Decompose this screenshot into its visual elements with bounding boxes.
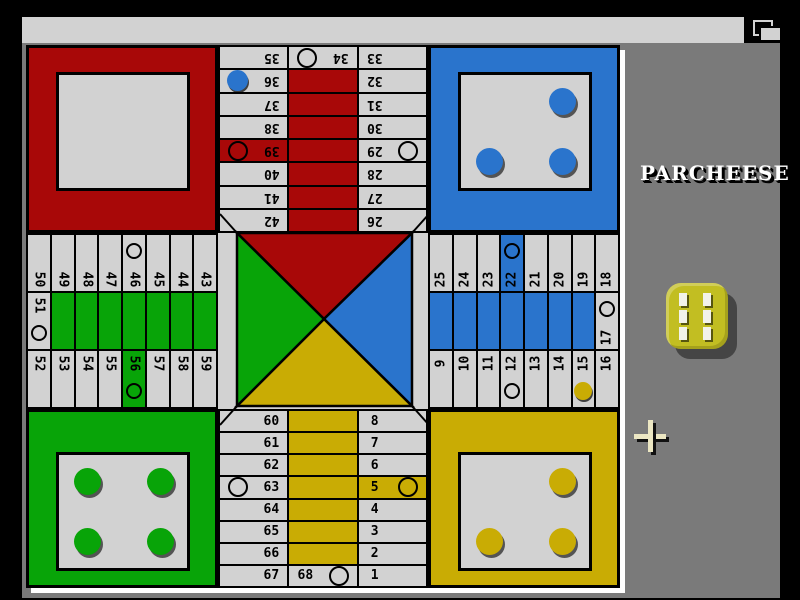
safe-circle bbox=[329, 566, 349, 586]
cell-number: 49 bbox=[55, 271, 70, 287]
track-cell-3[interactable]: 3 bbox=[359, 522, 426, 542]
cell-number: 48 bbox=[79, 271, 94, 287]
cell-extra-slot bbox=[220, 411, 255, 431]
cell-number: 10 bbox=[457, 355, 472, 371]
cell-number-slot: 23 bbox=[478, 267, 500, 291]
cell-number: 1 bbox=[371, 568, 379, 583]
home-corner-green bbox=[26, 409, 218, 588]
home-corner-blue bbox=[428, 45, 620, 233]
track-arm-right: 252423222120191817910111213141516 bbox=[428, 233, 620, 409]
cell-number: 25 bbox=[433, 271, 448, 287]
cell-number: 34 bbox=[333, 50, 349, 65]
home-run-cell-blue[interactable] bbox=[549, 293, 571, 349]
cell-number: 28 bbox=[367, 166, 383, 181]
cell-extra-slot bbox=[391, 70, 426, 91]
cell-number: 9 bbox=[433, 359, 448, 367]
die-pip bbox=[679, 293, 687, 306]
cell-number: 3 bbox=[371, 524, 379, 539]
cell-number: 36 bbox=[264, 73, 280, 88]
cell-extra-slot bbox=[220, 163, 255, 184]
cell-extra-slot bbox=[220, 117, 255, 138]
die-pip bbox=[703, 310, 711, 323]
game-board: 3534333632373138303929402841274226608617… bbox=[26, 45, 620, 588]
window-titlebar[interactable]: PARCHEESE (c) Xavier Egusquiza bbox=[22, 17, 745, 43]
track-cell-63[interactable]: 63 bbox=[220, 477, 287, 497]
cell-number-slot: 51 bbox=[28, 293, 50, 317]
track-cell-48[interactable]: 48 bbox=[76, 235, 98, 291]
cell-number-slot: 57 bbox=[147, 351, 169, 375]
track-cell-1[interactable]: 1 bbox=[359, 566, 426, 586]
cell-number-slot: 33 bbox=[359, 47, 391, 68]
cell-extra-slot bbox=[573, 235, 595, 267]
home-run-cell-red[interactable] bbox=[289, 140, 356, 161]
home-area-red[interactable] bbox=[56, 72, 190, 191]
cell-number-slot: 42 bbox=[255, 210, 287, 231]
cell-number: 56 bbox=[126, 355, 141, 371]
safe-circle bbox=[228, 477, 248, 497]
piece-blue[interactable] bbox=[549, 88, 576, 115]
track-cell-42[interactable]: 42 bbox=[220, 210, 287, 231]
home-run-cell-blue[interactable] bbox=[430, 293, 452, 349]
track-cell-13[interactable]: 13 bbox=[525, 351, 547, 407]
track-cell-67[interactable]: 67 bbox=[220, 566, 287, 586]
cell-number: 13 bbox=[528, 355, 543, 371]
cell-number-slot: 20 bbox=[549, 267, 571, 291]
cell-number: 50 bbox=[31, 271, 46, 287]
cell-number: 24 bbox=[457, 271, 472, 287]
home-run-cell-green[interactable] bbox=[194, 293, 216, 349]
cell-extra-slot bbox=[549, 235, 571, 267]
cell-number-slot: 41 bbox=[255, 187, 287, 208]
fuller-button[interactable] bbox=[744, 15, 787, 45]
cell-number-slot: 11 bbox=[478, 351, 500, 375]
cell-extra-slot bbox=[220, 477, 255, 497]
cell-extra-slot bbox=[28, 235, 50, 267]
cell-number-slot: 54 bbox=[76, 351, 98, 375]
cell-number: 63 bbox=[264, 480, 280, 495]
cell-number: 26 bbox=[367, 213, 383, 228]
track-cell-36[interactable]: 36 bbox=[220, 70, 287, 91]
cell-extra-slot bbox=[596, 293, 618, 325]
cell-extra-slot bbox=[220, 94, 255, 115]
track-cell-41[interactable]: 41 bbox=[220, 187, 287, 208]
safe-circle bbox=[126, 383, 142, 399]
track-cell-54[interactable]: 54 bbox=[76, 351, 98, 407]
track-cell-24[interactable]: 24 bbox=[454, 235, 476, 291]
cell-number-slot: 22 bbox=[501, 267, 523, 291]
cell-extra-slot bbox=[220, 544, 255, 564]
track-cell-18[interactable]: 18 bbox=[596, 235, 618, 291]
cell-number-slot: 19 bbox=[573, 267, 595, 291]
cell-extra-slot bbox=[391, 163, 426, 184]
cell-number: 62 bbox=[264, 458, 280, 473]
cell-extra-slot bbox=[220, 455, 255, 475]
cell-extra-slot bbox=[391, 477, 426, 497]
cell-extra-slot bbox=[391, 522, 426, 542]
track-cell-32[interactable]: 32 bbox=[359, 70, 426, 91]
cell-number-slot: 43 bbox=[194, 267, 216, 291]
cell-extra-slot bbox=[220, 433, 255, 453]
cell-extra-slot bbox=[430, 375, 452, 407]
track-cell-51[interactable]: 51 bbox=[28, 293, 50, 349]
cell-number: 67 bbox=[264, 568, 280, 583]
cell-extra-slot bbox=[391, 94, 426, 115]
cell-number: 18 bbox=[600, 271, 615, 287]
track-cell-65[interactable]: 65 bbox=[220, 522, 287, 542]
cell-number: 17 bbox=[600, 329, 615, 345]
cell-number-slot: 15 bbox=[573, 351, 595, 375]
track-cell-29[interactable]: 29 bbox=[359, 140, 426, 161]
home-run-cell-green[interactable] bbox=[171, 293, 193, 349]
track-cell-57[interactable]: 57 bbox=[147, 351, 169, 407]
piece-green[interactable] bbox=[147, 528, 174, 555]
cell-number-slot: 2 bbox=[359, 544, 391, 564]
cell-number: 35 bbox=[264, 50, 280, 65]
cell-number-slot: 68 bbox=[289, 566, 321, 586]
track-cell-62[interactable]: 62 bbox=[220, 455, 287, 475]
cell-extra-slot bbox=[194, 375, 216, 407]
cell-number: 59 bbox=[198, 355, 213, 371]
track-arm-top: 3534333632373138303929402841274226 bbox=[218, 45, 428, 233]
cell-number-slot: 29 bbox=[359, 140, 391, 161]
cell-extra-slot bbox=[147, 235, 169, 267]
cell-number: 32 bbox=[367, 73, 383, 88]
track-cell-30[interactable]: 30 bbox=[359, 117, 426, 138]
cell-extra-slot bbox=[194, 235, 216, 267]
cell-number-slot: 66 bbox=[255, 544, 287, 564]
cell-number-slot: 47 bbox=[99, 267, 121, 291]
track-cell-56[interactable]: 56 bbox=[123, 351, 145, 407]
cell-number-slot: 6 bbox=[359, 455, 391, 475]
die-button[interactable] bbox=[666, 283, 728, 349]
cell-number-slot: 13 bbox=[525, 351, 547, 375]
cell-extra-slot bbox=[391, 210, 426, 231]
cell-extra-slot bbox=[171, 375, 193, 407]
home-run-cell-red[interactable] bbox=[289, 210, 356, 231]
track-cell-35[interactable]: 35 bbox=[220, 47, 287, 68]
cell-number-slot: 28 bbox=[359, 163, 391, 184]
cell-extra-slot bbox=[28, 375, 50, 407]
cell-number-slot: 7 bbox=[359, 433, 391, 453]
home-run-cell-red[interactable] bbox=[289, 94, 356, 115]
cell-extra-slot bbox=[391, 187, 426, 208]
cell-extra-slot bbox=[454, 375, 476, 407]
cell-extra-slot bbox=[501, 235, 523, 267]
cell-number: 20 bbox=[552, 271, 567, 287]
cell-extra-slot bbox=[76, 375, 98, 407]
cell-number-slot: 4 bbox=[359, 500, 391, 520]
home-corner-yellow bbox=[428, 409, 620, 588]
track-cell-39[interactable]: 39 bbox=[220, 140, 287, 161]
piece-yellow[interactable] bbox=[574, 382, 592, 400]
cell-number-slot: 24 bbox=[454, 267, 476, 291]
cell-number: 37 bbox=[264, 97, 280, 112]
track-cell-25[interactable]: 25 bbox=[430, 235, 452, 291]
track-cell-10[interactable]: 10 bbox=[454, 351, 476, 407]
track-cell-66[interactable]: 66 bbox=[220, 544, 287, 564]
cell-number-slot: 53 bbox=[52, 351, 74, 375]
home-run-cell-yellow[interactable] bbox=[289, 433, 356, 453]
cell-number-slot: 10 bbox=[454, 351, 476, 375]
cell-number-slot: 9 bbox=[430, 351, 452, 375]
cell-number-slot: 14 bbox=[549, 351, 571, 375]
track-cell-12[interactable]: 12 bbox=[501, 351, 523, 407]
track-cell-17[interactable]: 17 bbox=[596, 293, 618, 349]
cell-number-slot: 52 bbox=[28, 351, 50, 375]
home-run-cell-blue[interactable] bbox=[573, 293, 595, 349]
track-cell-45[interactable]: 45 bbox=[147, 235, 169, 291]
track-cell-19[interactable]: 19 bbox=[573, 235, 595, 291]
cell-extra-slot bbox=[430, 235, 452, 267]
track-cell-40[interactable]: 40 bbox=[220, 163, 287, 184]
cell-extra-slot bbox=[391, 140, 426, 161]
track-cell-47[interactable]: 47 bbox=[99, 235, 121, 291]
home-run-cell-blue[interactable] bbox=[501, 293, 523, 349]
cell-extra-slot bbox=[123, 235, 145, 267]
cell-extra-slot bbox=[573, 375, 595, 407]
home-run-cell-yellow[interactable] bbox=[289, 455, 356, 475]
cell-number: 60 bbox=[264, 414, 280, 429]
piece-yellow[interactable] bbox=[476, 528, 503, 555]
track-cell-5[interactable]: 5 bbox=[359, 477, 426, 497]
cell-number: 61 bbox=[264, 436, 280, 451]
safe-circle bbox=[297, 48, 317, 68]
cell-number: 55 bbox=[103, 355, 118, 371]
safe-circle bbox=[599, 301, 615, 317]
cell-number: 65 bbox=[264, 524, 280, 539]
track-cell-14[interactable]: 14 bbox=[549, 351, 571, 407]
cell-extra-slot bbox=[147, 375, 169, 407]
restore-window-icon-front bbox=[759, 26, 782, 42]
safe-circle bbox=[504, 243, 520, 259]
track-cell-9[interactable]: 9 bbox=[430, 351, 452, 407]
safe-circle bbox=[398, 477, 418, 497]
crosshair-vertical bbox=[648, 420, 653, 452]
home-run-cell-blue[interactable] bbox=[454, 293, 476, 349]
die-pip bbox=[703, 327, 711, 340]
track-arm-left: 5049484746454443515253545556575859 bbox=[26, 233, 218, 409]
cell-number-slot: 18 bbox=[596, 267, 618, 291]
piece-yellow[interactable] bbox=[549, 468, 576, 495]
cell-extra-slot bbox=[220, 566, 255, 586]
cell-extra-slot bbox=[321, 566, 356, 586]
track-cell-6[interactable]: 6 bbox=[359, 455, 426, 475]
cell-extra-slot bbox=[391, 500, 426, 520]
track-cell-37[interactable]: 37 bbox=[220, 94, 287, 115]
cell-number-slot: 49 bbox=[52, 267, 74, 291]
piece-blue[interactable] bbox=[549, 148, 576, 175]
piece-blue[interactable] bbox=[227, 70, 248, 91]
track-cell-23[interactable]: 23 bbox=[478, 235, 500, 291]
cell-number: 41 bbox=[264, 190, 280, 205]
piece-blue[interactable] bbox=[476, 148, 503, 175]
screen: { "window": { "title": "PARCHEESE (c) Xa… bbox=[0, 0, 800, 600]
cell-number-slot: 21 bbox=[525, 267, 547, 291]
track-cell-68[interactable]: 68 bbox=[289, 566, 356, 586]
track-cell-2[interactable]: 2 bbox=[359, 544, 426, 564]
track-cell-21[interactable]: 21 bbox=[525, 235, 547, 291]
home-run-cell-yellow[interactable] bbox=[289, 522, 356, 542]
cell-number: 14 bbox=[552, 355, 567, 371]
piece-green[interactable] bbox=[74, 468, 101, 495]
home-run-cell-green[interactable] bbox=[52, 293, 74, 349]
home-area-yellow[interactable] bbox=[458, 452, 592, 571]
safe-circle bbox=[31, 325, 47, 341]
track-cell-55[interactable]: 55 bbox=[99, 351, 121, 407]
cell-extra-slot bbox=[596, 375, 618, 407]
cell-number-slot: 38 bbox=[255, 117, 287, 138]
cell-extra-slot bbox=[123, 375, 145, 407]
cell-number: 57 bbox=[150, 355, 165, 371]
cell-extra-slot bbox=[220, 70, 255, 91]
cell-number-slot: 32 bbox=[359, 70, 391, 91]
cell-number: 29 bbox=[367, 143, 383, 158]
cell-extra-slot bbox=[220, 522, 255, 542]
track-cell-11[interactable]: 11 bbox=[478, 351, 500, 407]
cell-extra-slot bbox=[220, 140, 255, 161]
cell-number-slot: 65 bbox=[255, 522, 287, 542]
cell-number: 30 bbox=[367, 120, 383, 135]
cell-number-slot: 56 bbox=[123, 351, 145, 375]
home-run-cell-red[interactable] bbox=[289, 163, 356, 184]
cell-extra-slot bbox=[220, 47, 255, 68]
piece-yellow[interactable] bbox=[549, 528, 576, 555]
cell-number: 42 bbox=[264, 213, 280, 228]
track-cell-31[interactable]: 31 bbox=[359, 94, 426, 115]
track-cell-52[interactable]: 52 bbox=[28, 351, 50, 407]
cell-extra-slot bbox=[525, 235, 547, 267]
cell-number: 5 bbox=[371, 480, 379, 495]
cell-number: 31 bbox=[367, 97, 383, 112]
track-arm-bottom: 60861762663564465366267681 bbox=[218, 409, 428, 588]
cell-extra-slot bbox=[391, 47, 426, 68]
cell-number: 68 bbox=[298, 568, 314, 583]
cell-number: 64 bbox=[264, 502, 280, 517]
cell-number-slot: 64 bbox=[255, 500, 287, 520]
track-cell-46[interactable]: 46 bbox=[123, 235, 145, 291]
center-home-triangles[interactable] bbox=[218, 233, 428, 409]
cell-extra-slot bbox=[171, 235, 193, 267]
cell-extra-slot bbox=[391, 433, 426, 453]
cell-number-slot: 25 bbox=[430, 267, 452, 291]
track-cell-61[interactable]: 61 bbox=[220, 433, 287, 453]
track-cell-53[interactable]: 53 bbox=[52, 351, 74, 407]
home-run-cell-green[interactable] bbox=[147, 293, 169, 349]
home-run-cell-green[interactable] bbox=[76, 293, 98, 349]
home-area-blue[interactable] bbox=[458, 72, 592, 191]
cell-number: 21 bbox=[528, 271, 543, 287]
cell-number-slot: 39 bbox=[255, 140, 287, 161]
cell-extra-slot bbox=[391, 566, 426, 586]
home-run-cell-green[interactable] bbox=[123, 293, 145, 349]
cell-extra-slot bbox=[99, 235, 121, 267]
home-run-cell-blue[interactable] bbox=[478, 293, 500, 349]
crosshair-cursor bbox=[634, 420, 668, 454]
home-run-cell-green[interactable] bbox=[99, 293, 121, 349]
cell-number: 46 bbox=[126, 271, 141, 287]
cell-number-slot: 60 bbox=[255, 411, 287, 431]
home-run-cell-red[interactable] bbox=[289, 117, 356, 138]
track-cell-43[interactable]: 43 bbox=[194, 235, 216, 291]
cell-number-slot: 40 bbox=[255, 163, 287, 184]
track-cell-20[interactable]: 20 bbox=[549, 235, 571, 291]
home-run-cell-red[interactable] bbox=[289, 70, 356, 91]
cell-number: 11 bbox=[481, 355, 496, 371]
cell-number: 27 bbox=[367, 190, 383, 205]
cell-number-slot: 26 bbox=[359, 210, 391, 231]
track-cell-15[interactable]: 15 bbox=[573, 351, 595, 407]
cell-number: 45 bbox=[150, 271, 165, 287]
track-cell-49[interactable]: 49 bbox=[52, 235, 74, 291]
cell-number-slot: 17 bbox=[596, 325, 618, 349]
cell-number: 8 bbox=[371, 414, 379, 429]
cell-number: 53 bbox=[55, 355, 70, 371]
track-cell-22[interactable]: 22 bbox=[501, 235, 523, 291]
home-area-green[interactable] bbox=[56, 452, 190, 571]
track-cell-4[interactable]: 4 bbox=[359, 500, 426, 520]
track-cell-38[interactable]: 38 bbox=[220, 117, 287, 138]
track-cell-28[interactable]: 28 bbox=[359, 163, 426, 184]
die-pip bbox=[679, 327, 687, 340]
cell-number-slot: 67 bbox=[255, 566, 287, 586]
home-run-cell-blue[interactable] bbox=[525, 293, 547, 349]
cell-number: 47 bbox=[103, 271, 118, 287]
track-cell-8[interactable]: 8 bbox=[359, 411, 426, 431]
cell-number-slot: 12 bbox=[501, 351, 523, 375]
cell-number: 12 bbox=[505, 355, 520, 371]
cell-number-slot: 48 bbox=[76, 267, 98, 291]
track-cell-59[interactable]: 59 bbox=[194, 351, 216, 407]
piece-green[interactable] bbox=[147, 468, 174, 495]
cell-extra-slot bbox=[478, 375, 500, 407]
track-cell-34[interactable]: 34 bbox=[289, 47, 356, 68]
safe-circle bbox=[504, 383, 520, 399]
track-cell-27[interactable]: 27 bbox=[359, 187, 426, 208]
cell-number-slot: 61 bbox=[255, 433, 287, 453]
cell-number: 39 bbox=[264, 143, 280, 158]
cell-number-slot: 45 bbox=[147, 267, 169, 291]
track-cell-50[interactable]: 50 bbox=[28, 235, 50, 291]
track-cell-64[interactable]: 64 bbox=[220, 500, 287, 520]
home-run-cell-yellow[interactable] bbox=[289, 544, 356, 564]
cell-extra-slot bbox=[501, 375, 523, 407]
cell-number: 51 bbox=[31, 297, 46, 313]
home-run-cell-yellow[interactable] bbox=[289, 477, 356, 497]
home-run-cell-red[interactable] bbox=[289, 187, 356, 208]
cell-number-slot: 46 bbox=[123, 267, 145, 291]
track-cell-44[interactable]: 44 bbox=[171, 235, 193, 291]
die-pip bbox=[703, 293, 711, 306]
home-run-cell-yellow[interactable] bbox=[289, 500, 356, 520]
cell-number: 40 bbox=[264, 166, 280, 181]
cell-extra-slot bbox=[76, 235, 98, 267]
track-cell-16[interactable]: 16 bbox=[596, 351, 618, 407]
cell-number-slot: 36 bbox=[255, 70, 287, 91]
cell-extra-slot bbox=[525, 375, 547, 407]
track-cell-58[interactable]: 58 bbox=[171, 351, 193, 407]
piece-green[interactable] bbox=[74, 528, 101, 555]
cell-extra-slot bbox=[99, 375, 121, 407]
cell-extra-slot bbox=[596, 235, 618, 267]
home-run-cell-yellow[interactable] bbox=[289, 411, 356, 431]
track-cell-7[interactable]: 7 bbox=[359, 433, 426, 453]
cell-number: 58 bbox=[174, 355, 189, 371]
cell-extra-slot bbox=[454, 235, 476, 267]
track-cell-33[interactable]: 33 bbox=[359, 47, 426, 68]
cell-number: 15 bbox=[576, 355, 591, 371]
cell-number: 52 bbox=[31, 355, 46, 371]
game-logo: PARCHEESE bbox=[640, 161, 760, 185]
